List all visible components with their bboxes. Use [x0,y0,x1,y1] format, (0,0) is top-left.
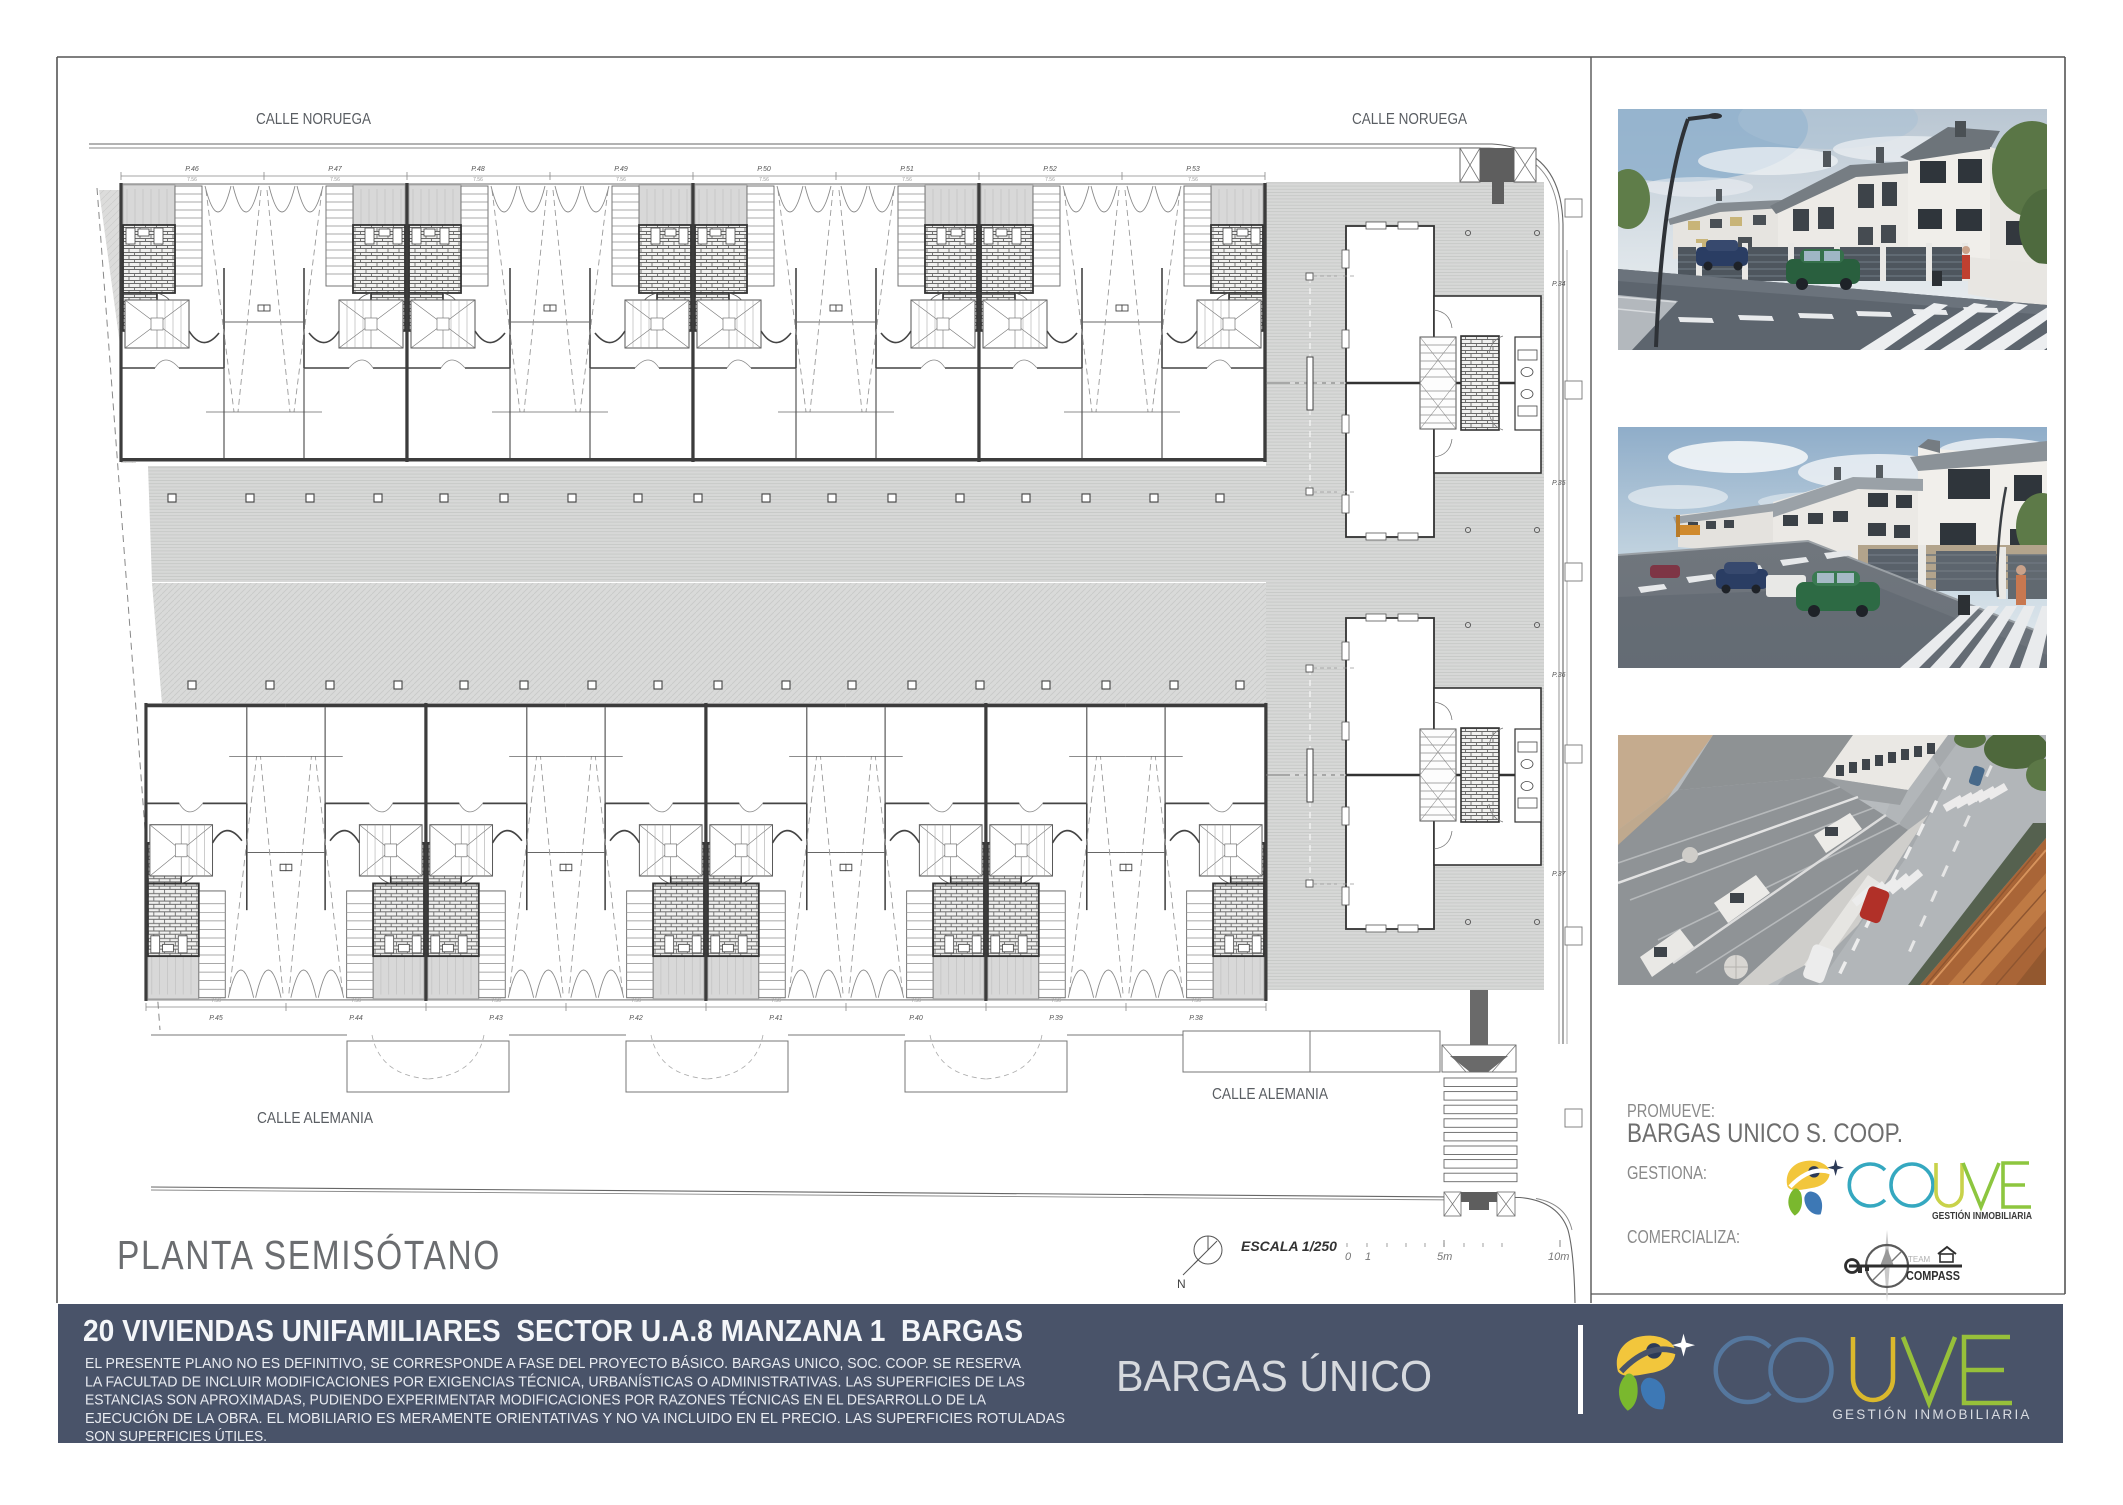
svg-text:7.56: 7.56 [771,998,781,1004]
svg-text:7.56: 7.56 [902,177,912,183]
svg-text:GESTIONA:: GESTIONA: [1627,1163,1707,1183]
svg-text:TEAM: TEAM [1908,1255,1931,1264]
svg-text:BARGAS UNICO S. COOP.: BARGAS UNICO S. COOP. [1627,1118,1903,1148]
svg-text:P.35: P.35 [1552,480,1566,487]
svg-text:7.56: 7.56 [1045,177,1055,183]
svg-text:P.39: P.39 [1049,1015,1063,1022]
svg-text:P.38: P.38 [1189,1015,1203,1022]
svg-text:7.56: 7.56 [187,177,197,183]
svg-text:7.56: 7.56 [211,998,221,1004]
svg-text:P.43: P.43 [489,1015,503,1022]
svg-text:GESTIÓN INMOBILIARIA: GESTIÓN INMOBILIARIA [1932,1209,2032,1222]
svg-text:P.37: P.37 [1552,871,1567,878]
svg-text:CALLE NORUEGA: CALLE NORUEGA [256,111,371,128]
svg-text:P.47: P.47 [328,166,343,173]
svg-text:P.49: P.49 [614,166,628,173]
svg-text:7.56: 7.56 [631,998,641,1004]
svg-text:ESTANCIAS SON APROXIMADAS, PUD: ESTANCIAS SON APROXIMADAS, PUDIENDO EXPE… [85,1392,986,1409]
svg-text:7.56: 7.56 [759,177,769,183]
svg-text:7.56: 7.56 [616,177,626,183]
svg-text:7.56: 7.56 [351,998,361,1004]
svg-text:7.56: 7.56 [1188,177,1198,183]
svg-text:10m: 10m [1548,1251,1569,1263]
svg-text:20 VIVIENDAS UNIFAMILIARES SE: 20 VIVIENDAS UNIFAMILIARES SECTOR U.A.8 … [83,1313,1023,1348]
svg-text:P.34: P.34 [1552,281,1566,288]
svg-text:7.56: 7.56 [473,177,483,183]
svg-text:P.40: P.40 [909,1015,923,1022]
svg-text:CALLE ALEMANIA: CALLE ALEMANIA [257,1110,373,1127]
svg-text:P.45: P.45 [209,1015,223,1022]
svg-text:P.46: P.46 [185,166,199,173]
svg-text:P.41: P.41 [769,1015,783,1022]
svg-text:CALLE NORUEGA: CALLE NORUEGA [1352,111,1467,128]
svg-text:PLANTA SEMISÓTANO: PLANTA SEMISÓTANO [117,1232,501,1278]
svg-text:EJECUCIÓN DE LA OBRA. EL MOBIL: EJECUCIÓN DE LA OBRA. EL MOBILIARIO ES M… [85,1410,1065,1427]
svg-text:GESTIÓN INMOBILIARIA: GESTIÓN INMOBILIARIA [1832,1407,2031,1422]
svg-text:P.44: P.44 [349,1015,363,1022]
svg-text:COMPASS: COMPASS [1906,1269,1960,1283]
svg-text:COMERCIALIZA:: COMERCIALIZA: [1627,1227,1740,1247]
svg-text:P.52: P.52 [1043,166,1057,173]
svg-text:0: 0 [1345,1251,1352,1263]
svg-text:P.36: P.36 [1552,672,1566,679]
svg-text:7.56: 7.56 [1191,998,1201,1004]
svg-text:N: N [1177,1277,1186,1291]
svg-text:SON SUPERFICIES ÚTILES.: SON SUPERFICIES ÚTILES. [85,1428,267,1445]
svg-text:7.56: 7.56 [911,998,921,1004]
svg-text:CALLE ALEMANIA: CALLE ALEMANIA [1212,1086,1328,1103]
svg-text:P.48: P.48 [471,166,485,173]
svg-text:P.53: P.53 [1186,166,1200,173]
svg-text:ESCALA 1/250: ESCALA 1/250 [1241,1238,1337,1254]
svg-text:P.50: P.50 [757,166,771,173]
svg-text:7.56: 7.56 [1051,998,1061,1004]
svg-text:EL PRESENTE PLANO NO ES DEFINI: EL PRESENTE PLANO NO ES DEFINITIVO, SE C… [85,1355,1021,1372]
svg-text:7.56: 7.56 [491,998,501,1004]
svg-text:LA FACULTAD DE INCLUIR MODIFIC: LA FACULTAD DE INCLUIR MODIFICACIONES PO… [85,1373,1025,1390]
svg-text:7.56: 7.56 [330,177,340,183]
svg-text:1: 1 [1365,1251,1371,1263]
svg-text:P.42: P.42 [629,1015,643,1022]
svg-text:BARGAS ÚNICO: BARGAS ÚNICO [1116,1352,1432,1401]
svg-text:P.51: P.51 [900,166,914,173]
svg-text:5m: 5m [1437,1251,1452,1263]
